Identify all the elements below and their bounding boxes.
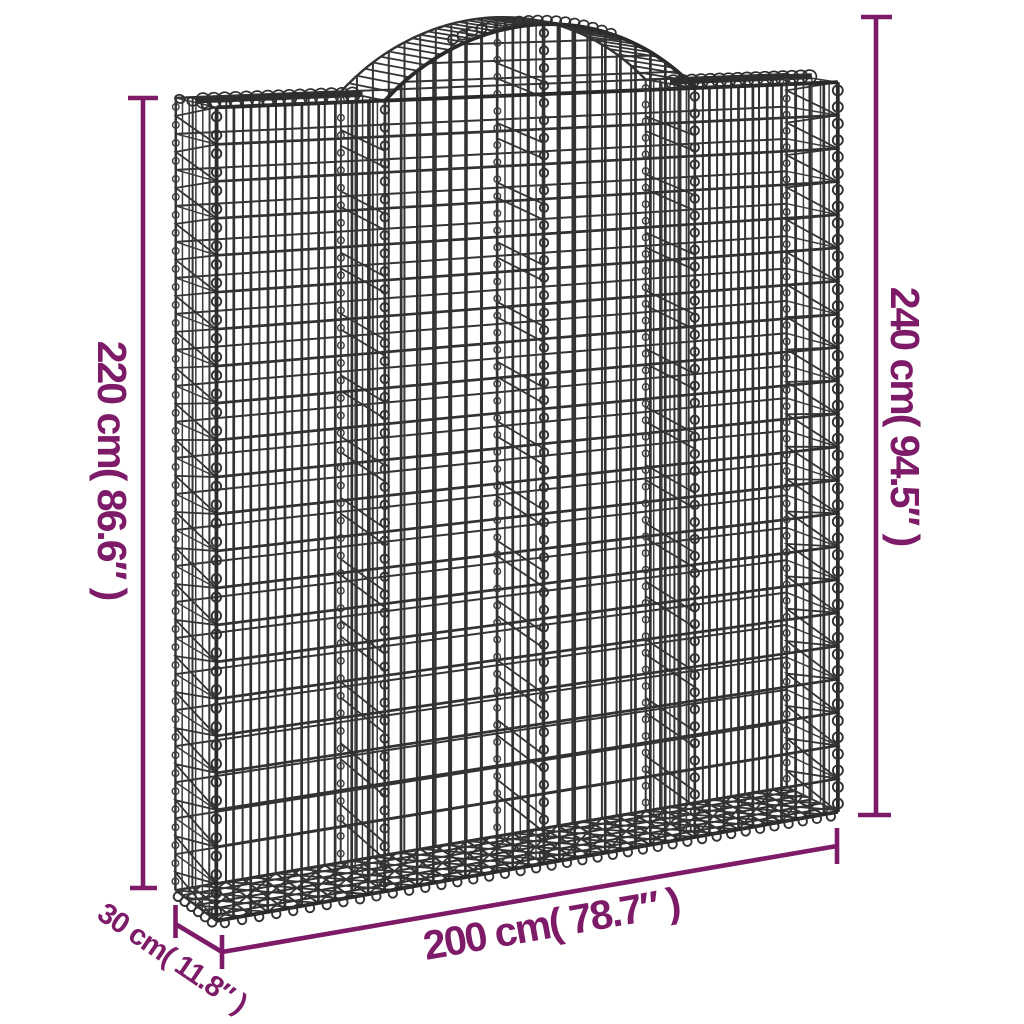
svg-text:220 cm( 86.6″ ): 220 cm( 86.6″ ) — [89, 341, 135, 600]
svg-text:240 cm( 94.5″ ): 240 cm( 94.5″ ) — [882, 287, 928, 546]
